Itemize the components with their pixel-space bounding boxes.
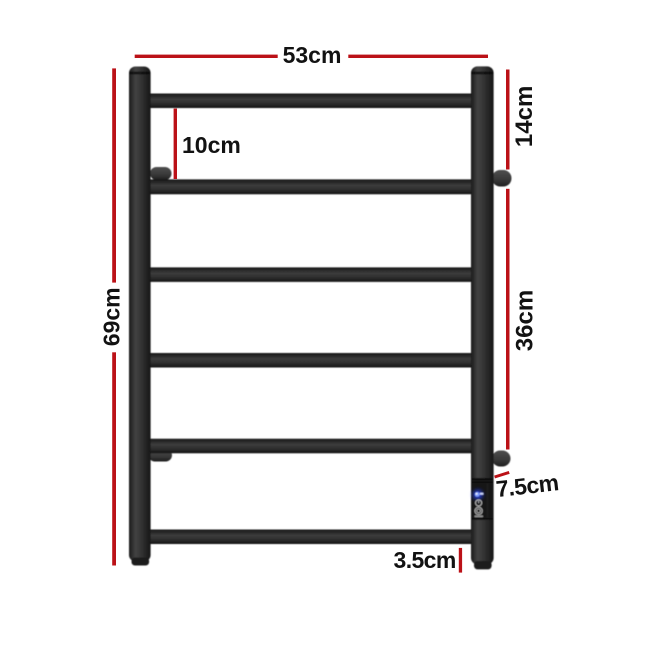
svg-text:10cm: 10cm — [182, 132, 241, 158]
svg-text:3.5cm: 3.5cm — [394, 547, 456, 573]
svg-text:69cm: 69cm — [99, 287, 125, 346]
svg-text:53cm: 53cm — [283, 42, 342, 68]
svg-text:14cm: 14cm — [511, 86, 538, 147]
svg-text:36cm: 36cm — [512, 290, 539, 351]
